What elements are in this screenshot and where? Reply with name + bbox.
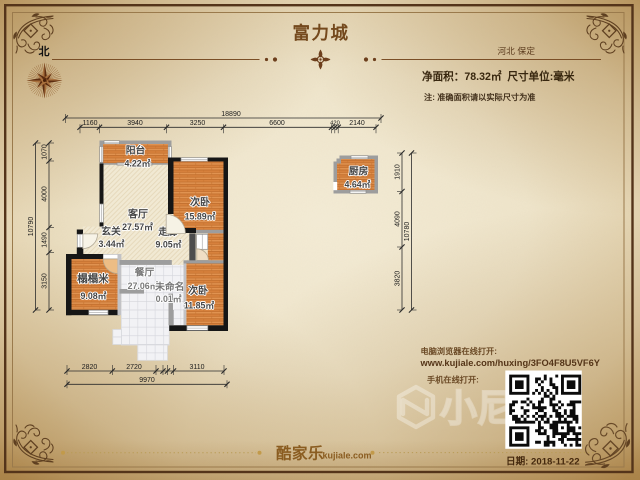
svg-text:3820: 3820 [395,271,402,287]
svg-text:3250: 3250 [190,120,206,127]
svg-text:未命名: 未命名 [155,280,184,293]
svg-text:4.22㎡: 4.22㎡ [125,158,151,169]
svg-text:次卧: 次卧 [190,196,210,209]
svg-text:www.kujiale.com/huxing/3FO4F8U: www.kujiale.com/huxing/3FO4F8U5VF6Y [420,358,601,368]
svg-text:餐厅: 餐厅 [134,266,155,279]
svg-text:次卧: 次卧 [188,284,208,297]
svg-text:河北 保定: 河北 保定 [497,45,535,56]
svg-text:11.85㎡: 11.85㎡ [184,300,215,311]
svg-text:日期: 2018-11-22: 日期: 2018-11-22 [506,456,580,468]
svg-text:北: 北 [39,44,50,58]
svg-text:手机在线打开:: 手机在线打开: [427,375,479,385]
svg-text:3.44㎡: 3.44㎡ [99,238,125,249]
svg-text:玄关: 玄关 [101,225,121,238]
svg-text:净面积：78.32㎡ 尺寸单位:毫米: 净面积：78.32㎡ 尺寸单位:毫米 [422,70,575,83]
svg-text:27.57㎡: 27.57㎡ [122,221,153,232]
svg-text:厨房: 厨房 [349,165,369,178]
svg-text:15.89㎡: 15.89㎡ [185,211,216,222]
svg-text:9.08㎡: 9.08㎡ [81,290,107,301]
svg-text:420: 420 [330,121,340,127]
svg-text:0.01㎡: 0.01㎡ [156,293,182,304]
svg-text:2820: 2820 [82,364,98,371]
svg-text:1160: 1160 [82,120,97,127]
svg-text:阳台: 阳台 [126,144,146,157]
svg-text:榻榻米: 榻榻米 [77,272,109,285]
svg-text:4.64㎡: 4.64㎡ [345,179,371,190]
svg-text:2720: 2720 [126,364,142,371]
svg-text:4090: 4090 [395,211,402,227]
svg-text:注: 准确面积请以实际尺寸为准: 注: 准确面积请以实际尺寸为准 [424,92,535,102]
svg-text:9.05㎡: 9.05㎡ [156,238,182,249]
svg-text:27.06㎡: 27.06㎡ [128,280,159,291]
svg-text:4000: 4000 [42,186,49,202]
svg-text:kujiale.com: kujiale.com [323,451,372,461]
svg-text:电脑浏览器在线打开:: 电脑浏览器在线打开: [421,346,497,356]
svg-text:3940: 3940 [127,120,143,127]
svg-text:10780: 10780 [404,222,411,242]
svg-text:1910: 1910 [395,164,402,180]
svg-text:2140: 2140 [349,120,365,127]
svg-text:1070: 1070 [42,144,49,160]
svg-text:3110: 3110 [189,364,204,371]
svg-text:客厅: 客厅 [127,208,148,221]
svg-text:富力城: 富力城 [293,23,350,43]
svg-text:小尼: 小尼 [440,388,514,429]
svg-text:3150: 3150 [42,273,49,289]
svg-text:10790: 10790 [28,217,35,237]
svg-text:18890: 18890 [221,111,241,118]
svg-text:酷家乐: 酷家乐 [276,444,324,463]
svg-text:1490: 1490 [42,232,49,248]
svg-text:9970: 9970 [139,377,155,384]
svg-text:6600: 6600 [269,120,285,127]
